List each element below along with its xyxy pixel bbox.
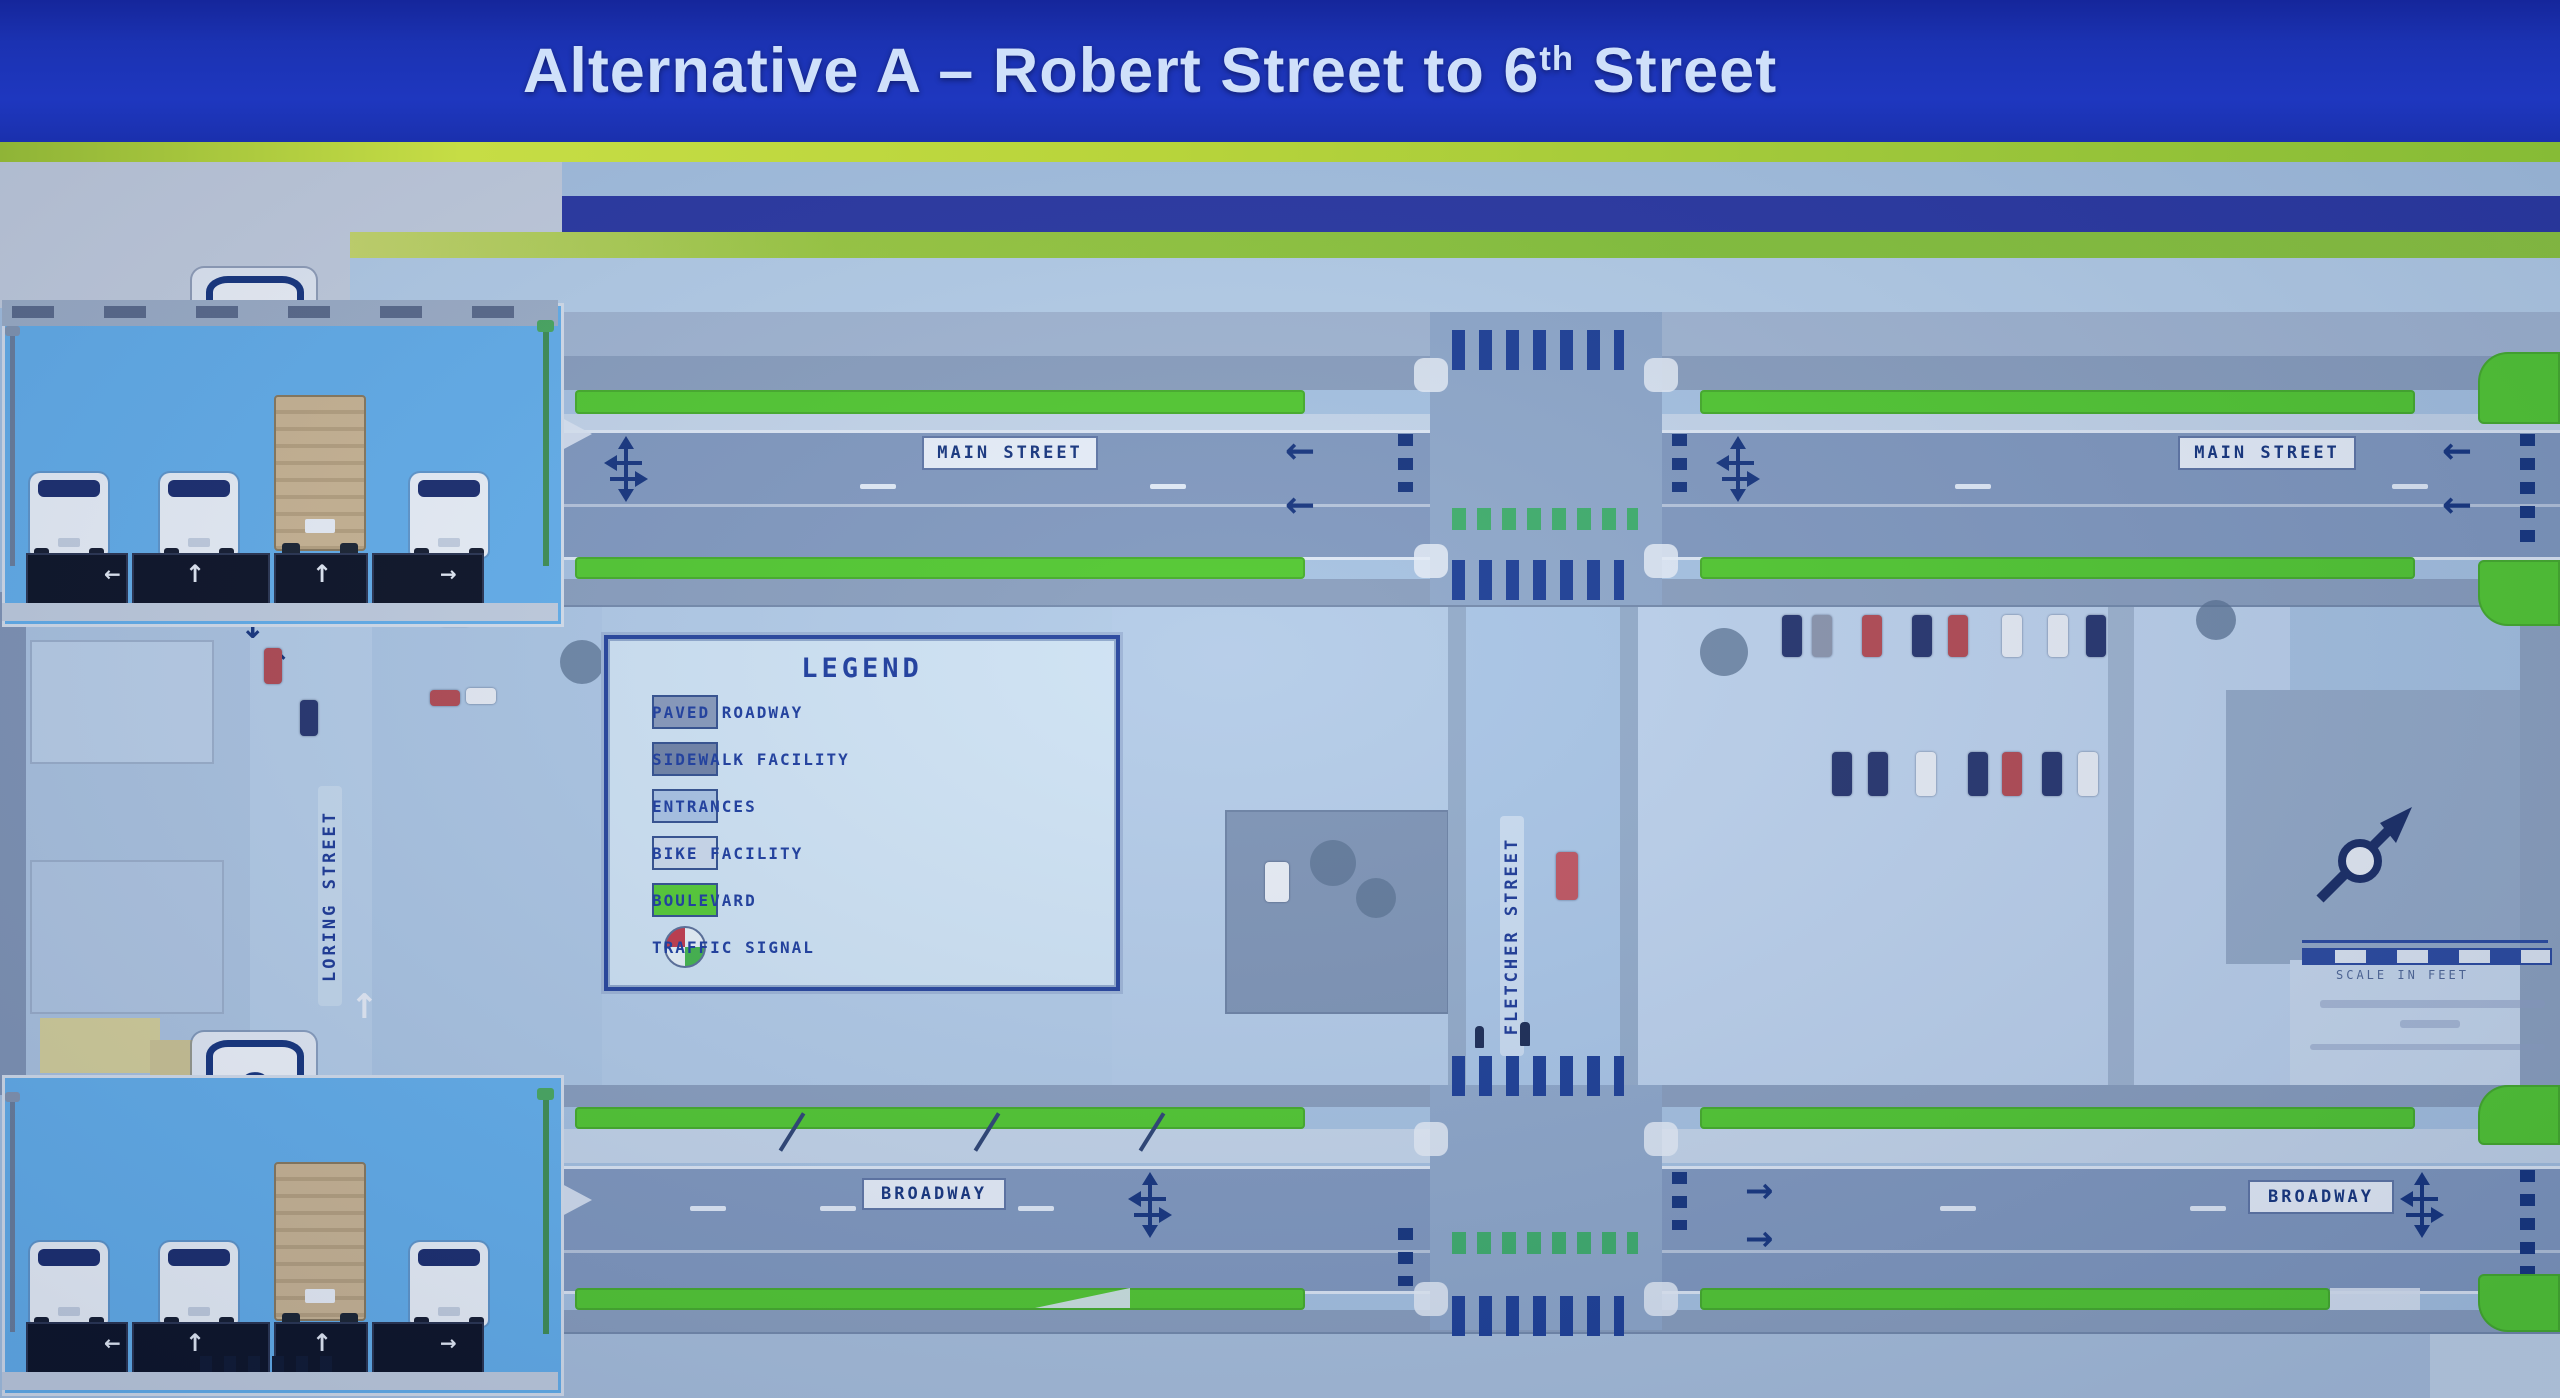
aerial-below-legend (602, 980, 1112, 1095)
vehicle-window (168, 480, 230, 497)
parked-car (1832, 752, 1852, 796)
page-title: Alternative A – Robert Street to 6th Str… (523, 35, 2037, 107)
parked-car (2002, 615, 2022, 657)
slide: Alternative A – Robert Street to 6th Str… (0, 0, 2560, 1398)
vehicle-plate (188, 538, 210, 547)
parked-car (300, 700, 318, 736)
vehicle-icon (160, 1242, 238, 1326)
vehicle-window (418, 480, 480, 497)
legend-label: TRAFFIC SIGNAL (652, 938, 815, 957)
left-arrow-marking: ← (2442, 488, 2472, 524)
parked-car (466, 688, 496, 704)
lane-dash (860, 484, 896, 489)
lane-dash (1150, 484, 1186, 489)
parked-car (2002, 752, 2022, 796)
lane-dash (1955, 484, 1991, 489)
broadway-boulevard-north-east (1700, 1107, 2415, 1129)
crosswalk-broadway-south (1452, 1296, 1624, 1336)
lamp-post (10, 1100, 15, 1332)
left-arrow-marking: ← (1285, 488, 1315, 524)
lamp-head (5, 326, 20, 336)
building (30, 640, 214, 764)
blurred-note-text (2400, 1020, 2460, 1028)
tree (1310, 840, 1356, 886)
aerial-left-edge (0, 592, 26, 1095)
scale-bar-line (2302, 940, 2548, 943)
dimension-arrow: ← (104, 1333, 121, 1353)
vehicle-plate (438, 538, 460, 547)
dimension-arrow: ↑ (185, 1331, 205, 1355)
legend-title: LEGEND (608, 653, 1116, 684)
main-boulevard-north-west (575, 390, 1305, 414)
boulevard-corner (2478, 560, 2560, 626)
stop-bar (1398, 1228, 1413, 1286)
pedestrian-figure (1520, 1022, 1530, 1046)
legend-label: ENTRANCES (652, 797, 757, 816)
main-street-label-west: MAIN STREET (922, 436, 1098, 470)
blurred-note-text (2320, 1000, 2545, 1008)
vehicle-icon (30, 473, 108, 557)
broadway-text: BROADWAY (881, 1184, 987, 1204)
parked-car (1265, 862, 1289, 902)
dimension-arrow: ↑ (185, 562, 205, 586)
lane-arrow-cluster (1128, 1172, 1172, 1238)
aerial-alley (2108, 592, 2134, 1095)
tree (560, 640, 604, 684)
bike-crossing-main (1452, 508, 1638, 530)
lamp-head (537, 1088, 554, 1100)
up-arrow-marking: ↑ (350, 990, 379, 1024)
fletcher-sidewalk-west (1448, 592, 1466, 1095)
parked-car (2048, 615, 2068, 657)
curb-corner (1414, 544, 1448, 578)
fletcher-street-text: FLETCHER STREET (1502, 837, 1522, 1036)
lane-dash (690, 1206, 726, 1211)
main-boulevard-south-west (575, 557, 1305, 579)
truck-plate (305, 519, 335, 533)
vehicle-window (418, 1249, 480, 1266)
parked-car (1782, 615, 1802, 657)
lamp-head (537, 320, 554, 332)
main-boulevard-north-east (1700, 390, 2415, 414)
boulevard-corner (2478, 352, 2560, 424)
lane-arrow-cluster (2400, 1172, 2444, 1238)
panel-base (2, 603, 558, 621)
lamp-post (543, 328, 549, 566)
curb-corner (1644, 544, 1678, 578)
curb-corner (1644, 1122, 1678, 1156)
broadway-text: BROADWAY (2268, 1187, 2374, 1207)
aerial-plaza-band (350, 258, 2560, 314)
loring-street-label: LORING STREET (318, 786, 342, 1006)
dimension-arrow: ↑ (312, 562, 332, 586)
aerial-grass-band (350, 232, 2560, 258)
broadway-boulevard-south-west (575, 1288, 1305, 1310)
left-arrow-marking: ← (2442, 434, 2472, 470)
pedestrian-figure (1475, 1026, 1484, 1048)
title-text: Alternative A – Robert Street to 6 (523, 36, 1540, 106)
curb-corner (1414, 1122, 1448, 1156)
fletcher-sidewalk-east (1620, 592, 1638, 1095)
main-boulevard-south-east (1700, 557, 2415, 579)
dimension-arrow: → (440, 564, 457, 584)
main-street-text: MAIN STREET (937, 443, 1083, 463)
lamp-post (543, 1096, 549, 1334)
lane-dash (2190, 1206, 2226, 1211)
curb-corner (1414, 1282, 1448, 1316)
truck-icon (274, 395, 366, 551)
tree (2196, 600, 2236, 640)
dimension-arrow: → (440, 1333, 457, 1353)
legend-label: BIKE FACILITY (652, 844, 803, 863)
crosswalk-main-north (1452, 330, 1624, 370)
vehicle-icon (410, 1242, 488, 1326)
blurred-note-text (2310, 1044, 2545, 1050)
lane-dash (2392, 484, 2428, 489)
legend-label: PAVED ROADWAY (652, 703, 803, 722)
aerial-bottom-right (2430, 1330, 2560, 1398)
vehicle-plate (188, 1307, 210, 1316)
lamp-post (10, 334, 15, 566)
parked-car (1912, 615, 1932, 657)
left-arrow-marking: ← (1285, 434, 1315, 470)
fletcher-street-label: FLETCHER STREET (1500, 816, 1524, 1056)
right-arrow-marking: → (1745, 1174, 1774, 1208)
legend-label: SIDEWALK FACILITY (652, 750, 850, 769)
curb-corner (1644, 1282, 1678, 1316)
vehicle-plate (58, 538, 80, 547)
parked-car (1968, 752, 1988, 796)
truck-icon (274, 1162, 366, 1321)
tree (1356, 878, 1396, 918)
lane-dash (820, 1206, 856, 1211)
stop-bar (1672, 434, 1687, 492)
title-bar: Alternative A – Robert Street to 6th Str… (0, 0, 2560, 142)
lamp-head (5, 1092, 20, 1102)
north-arrow-icon (2300, 795, 2430, 915)
dimension-bar (372, 1322, 484, 1374)
lane-arrow-cluster (604, 436, 648, 502)
vehicle-icon (410, 473, 488, 557)
parked-car (2042, 752, 2062, 796)
vehicle-window (168, 1249, 230, 1266)
broadway-fletcher-intersection (1430, 1085, 1662, 1330)
vehicle-window (38, 1249, 100, 1266)
parked-car (1916, 752, 1936, 796)
title-superscript: th (1539, 40, 1574, 78)
vehicle-icon (160, 473, 238, 557)
curb-corner (1644, 358, 1678, 392)
tree (1700, 628, 1748, 676)
broadway-boulevard-south-east (1700, 1288, 2330, 1310)
vehicle-window (38, 480, 100, 497)
curb-taper (2330, 1288, 2420, 1310)
boulevard-corner (2478, 1274, 2560, 1332)
main-street-text: MAIN STREET (2194, 443, 2340, 463)
aerial-bottom-band (560, 1330, 2560, 1398)
lane-dash (1018, 1206, 1054, 1211)
dimension-arrow: ← (104, 564, 121, 584)
stop-bar (1672, 1172, 1687, 1230)
aerial-right-edge (2520, 592, 2560, 1095)
scale-bar (2302, 948, 2552, 965)
right-arrow-marking: → (1745, 1222, 1774, 1256)
parked-car (2078, 752, 2098, 796)
bike-crossing-broadway (1452, 1232, 1638, 1254)
dimension-bar (372, 553, 484, 605)
parked-car (430, 690, 460, 706)
stop-bar (2520, 434, 2535, 550)
title-suffix: Street (1574, 36, 1777, 106)
vehicle-icon (30, 1242, 108, 1326)
loring-street-text: LORING STREET (320, 810, 340, 982)
legend-label: BOULEVARD (652, 891, 757, 910)
lane-dash (1940, 1206, 1976, 1211)
divider-strip (0, 142, 2560, 162)
legend: LEGEND PAVED ROADWAY SIDEWALK FACILITY E… (604, 635, 1120, 991)
building-yellow (40, 1018, 160, 1073)
boulevard-corner (2478, 1085, 2560, 1145)
broadway-boulevard-north-west (575, 1107, 1305, 1129)
stop-bar (2520, 1170, 2535, 1286)
scale-caption: SCALE IN FEET (2336, 968, 2469, 982)
main-street-label-east: MAIN STREET (2178, 436, 2356, 470)
lane-arrow-cluster (1716, 436, 1760, 502)
broadway-label-east: BROADWAY (2248, 1180, 2394, 1214)
truck-plate (305, 1289, 335, 1303)
building (30, 860, 224, 1014)
parked-car (1862, 615, 1882, 657)
parked-car (1556, 852, 1578, 900)
fletcher-street-pavement (1448, 592, 1638, 1095)
crosswalk-main-south (1452, 560, 1624, 600)
vehicle-plate (58, 1307, 80, 1316)
vehicle-plate (438, 1307, 460, 1316)
panel-base (2, 1372, 558, 1390)
broadway-label-west: BROADWAY (862, 1178, 1006, 1210)
parked-car (1948, 615, 1968, 657)
parked-car (1812, 615, 1832, 657)
street-plan-map: MAIN STREET ← ← MAIN STREET ← ← (0, 162, 2560, 1398)
curb-corner (1414, 358, 1448, 392)
stop-bar (1398, 434, 1413, 492)
parked-car (2086, 615, 2106, 657)
panel-lintel-windows (12, 306, 548, 318)
dimension-arrow: ↑ (312, 1331, 332, 1355)
parked-car (264, 648, 282, 684)
crosswalk-broadway-north (1452, 1056, 1624, 1096)
parked-car (1868, 752, 1888, 796)
